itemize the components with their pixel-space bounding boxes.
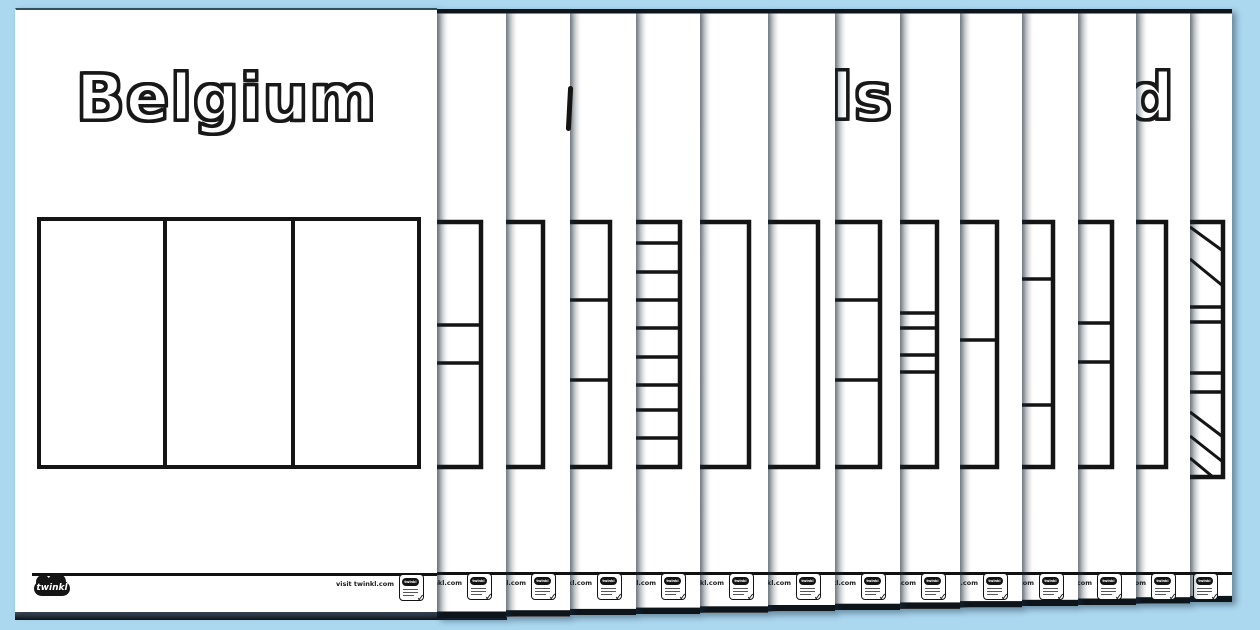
twinkl-quality-stamp: twinkl✓ (1151, 573, 1176, 600)
stamp-check-icon: ✓ (1211, 592, 1219, 603)
twinkl-quality-stamp: twinkl ✓ (399, 574, 424, 601)
stacked-page-2: visit twinkl.comtwinkl✓ (437, 9, 506, 618)
stacked-page-4: visit twinkl.comtwinkl✓ (570, 9, 636, 615)
stamp-cloud-icon: twinkl (1196, 577, 1213, 585)
stamp-caption-line (987, 594, 998, 595)
stamp-caption-line (1043, 588, 1058, 589)
stamp-caption-line (733, 588, 748, 589)
stacked-page-11: visit twinkl.comtwinkl✓ (1022, 9, 1078, 606)
stamp-cloud-icon: twinkl (864, 577, 881, 585)
flag-outline-fragment (768, 222, 818, 467)
stamp-cloud-icon: twinkl (799, 577, 816, 585)
stamp-caption-line (800, 588, 815, 589)
stamp-check-icon: ✓ (549, 592, 557, 603)
stamp-cloud-icon: twinkl (1100, 577, 1117, 585)
stamp-caption-line (987, 588, 1002, 589)
stamp-caption-line (800, 594, 811, 595)
flag-fragment-drawing (570, 9, 636, 615)
stamp-check-icon: ✓ (485, 592, 493, 603)
stamp-caption-line (601, 594, 612, 595)
stamp-cloud-icon: twinkl (732, 577, 749, 585)
footer-rule (32, 573, 437, 576)
stacked-page-14: visit twinkl.comtwinkl✓ (1190, 9, 1232, 602)
stacked-page-9: visit twinkl.comtwinkl✓ (900, 9, 960, 609)
flag-divider-line (291, 221, 295, 465)
flag-outline-fragment (437, 222, 481, 467)
flag-outline-fragment (835, 222, 880, 467)
flag-outline-fragment (960, 222, 997, 467)
flag-fragment-drawing (960, 9, 1022, 608)
flag-outline-fragment (1136, 222, 1166, 467)
stacked-page-7: visit twinkl.comtwinkl✓ (768, 9, 835, 612)
twinkl-quality-stamp: twinkl✓ (861, 573, 886, 600)
visit-twinkl-text: visit twinkl.com (316, 580, 394, 588)
stamp-cloud-icon: twinkl (534, 577, 551, 585)
flag-outline-fragment (1022, 222, 1053, 467)
stacked-page-3: visit twinkl.comtwinkl✓ (506, 9, 570, 617)
stamp-caption-line (865, 594, 876, 595)
stamp-cloud-icon: twinkl (470, 577, 487, 585)
stamp-caption-line (471, 594, 482, 595)
twinkl-quality-stamp: twinkl✓ (1097, 573, 1122, 600)
worksheet-stack-preview: visit twinkl.comtwinkl✓visit twinkl.comt… (0, 0, 1260, 630)
twinkl-quality-stamp: twinkl✓ (921, 573, 946, 600)
stamp-cloud-icon: twinkl (664, 577, 681, 585)
stamp-check-icon: ✓ (1001, 592, 1009, 603)
page-stack-bottom-edges (15, 612, 507, 620)
flag-outline-fragment (700, 222, 749, 467)
stamp-cloud-icon: twinkl (1042, 577, 1059, 585)
twinkl-quality-stamp: twinkl✓ (531, 573, 556, 600)
flag-outline-fragment (636, 222, 680, 467)
stamp-caption-line (1155, 594, 1166, 595)
stamp-check-icon: ✓ (814, 592, 822, 603)
stamp-check-icon: ✓ (879, 592, 887, 603)
twinkl-quality-stamp: twinkl✓ (1193, 573, 1218, 600)
stamp-check-icon: ✓ (1169, 592, 1177, 603)
stacked-page-8: lsvisit twinkl.comtwinkl✓ (835, 9, 900, 610)
stamp-caption-line (665, 594, 676, 595)
stacked-page-6: visit twinkl.comtwinkl✓ (700, 9, 768, 613)
stamp-check-icon: ✓ (615, 592, 623, 603)
stamp-caption-line (925, 594, 936, 595)
stamp-caption-line (601, 588, 616, 589)
stamp-cloud-icon: twinkl (600, 577, 617, 585)
twinkl-logo-text: twinkl (34, 581, 70, 596)
stamp-check-icon: ✓ (417, 593, 425, 604)
flag-outline-fragment (900, 222, 937, 467)
stamp-cloud-icon: twinkl (924, 577, 941, 585)
twinkl-quality-stamp: twinkl✓ (729, 573, 754, 600)
flag-divider-line (163, 221, 167, 465)
twinkl-quality-stamp: twinkl✓ (597, 573, 622, 600)
stamp-check-icon: ✓ (939, 592, 947, 603)
flag-fragment-drawing (1022, 9, 1078, 606)
stamp-caption-line (1155, 588, 1170, 589)
stamp-cloud-icon: twinkl (1154, 577, 1171, 585)
title-fragment: ls (831, 66, 893, 130)
flag-fragment-drawing (1190, 9, 1232, 602)
stacked-page-10: visit twinkl.comtwinkl✓ (960, 9, 1022, 608)
belgium-flag-outline (37, 217, 421, 469)
twinkl-logo: twinkl (34, 581, 70, 596)
stamp-caption-line (403, 589, 418, 590)
flag-outline-fragment (506, 222, 543, 467)
stamp-cloud-icon: twinkl (986, 577, 1003, 585)
stamp-caption-line (403, 595, 414, 596)
stamp-caption-line (1043, 594, 1054, 595)
stamp-check-icon: ✓ (1057, 592, 1065, 603)
twinkl-quality-stamp: twinkl✓ (796, 573, 821, 600)
stacked-page-5: visit twinkl.comtwinkl✓ (636, 9, 700, 614)
stamp-caption-line (1101, 594, 1112, 595)
stacked-page-13: dvisit twinkl.comtwinkl✓ (1136, 9, 1190, 604)
twinkl-quality-stamp: twinkl✓ (983, 573, 1008, 600)
front-page-belgium: Belgium twinkl visit twinkl.com twinkl ✓ (15, 8, 437, 612)
stamp-caption-line (925, 588, 940, 589)
stacked-page-12: visit twinkl.comtwinkl✓ (1078, 9, 1136, 605)
stamp-caption-line (865, 588, 880, 589)
flag-fragment-drawing (700, 9, 768, 613)
stamp-cloud-icon: twinkl (402, 578, 419, 586)
stamp-caption-line (665, 588, 680, 589)
stamp-caption-line (535, 594, 546, 595)
twinkl-quality-stamp: twinkl✓ (661, 573, 686, 600)
stamp-caption-line (1197, 588, 1212, 589)
stamp-caption-line (471, 588, 486, 589)
stamp-check-icon: ✓ (747, 592, 755, 603)
flag-outline-fragment (570, 222, 610, 467)
flag-fragment-drawing (768, 9, 835, 612)
stamp-check-icon: ✓ (1115, 592, 1123, 603)
stamp-caption-line (535, 588, 550, 589)
flag-fragment-drawing (1078, 9, 1136, 605)
twinkl-quality-stamp: twinkl✓ (467, 573, 492, 600)
flag-fragment-drawing (506, 9, 570, 617)
flag-fragment-drawing (900, 9, 960, 609)
twinkl-quality-stamp: twinkl✓ (1039, 573, 1064, 600)
flag-fragment-drawing (636, 9, 700, 614)
stamp-caption-line (1197, 594, 1208, 595)
stamp-caption-line (1101, 588, 1116, 589)
flag-outline-fragment (1078, 222, 1112, 467)
flag-fragment-drawing (437, 9, 506, 618)
stamp-check-icon: ✓ (679, 592, 687, 603)
stamp-caption-line (733, 594, 744, 595)
page-title: Belgium (16, 67, 437, 131)
